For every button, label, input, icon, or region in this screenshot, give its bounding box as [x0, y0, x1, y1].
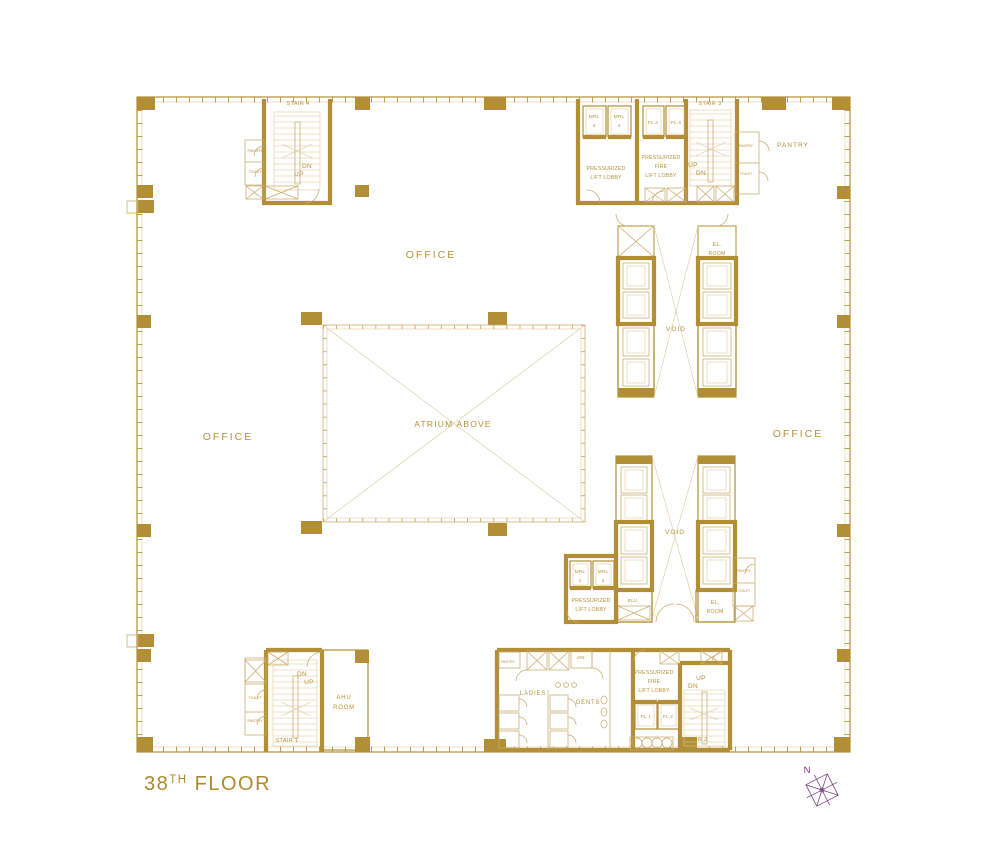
- stair4-toilet-label: TOILET: [248, 170, 262, 174]
- tr-toilet-small-label: TOILET: [740, 172, 753, 176]
- stair3-up: UP: [688, 162, 698, 169]
- core-top-right: MRL 3 MRL 4 PRESSURIZED LIFT LOBBY FL 3 …: [578, 99, 769, 203]
- br-fire-lobby-line2: FIRE: [648, 679, 661, 685]
- title-word: FLOOR: [188, 773, 271, 795]
- lower-core-double-door-right: [676, 604, 694, 622]
- mr-lobby-line2: LIFT LOBBY: [575, 607, 607, 613]
- washroom-stalls: [499, 683, 607, 749]
- title-number: 38: [144, 773, 169, 795]
- stair3-label: STAIR 3: [698, 101, 721, 107]
- atrium-label: ATRIUM ABOVE: [414, 419, 492, 429]
- tr-fire-lobby-line2: FIRE: [655, 164, 668, 170]
- mrl3-line1: MRL: [589, 114, 600, 120]
- title-ordinal: TH: [169, 774, 187, 786]
- mr-toilet-small-label: TOILET: [738, 589, 751, 593]
- fl2-label: FL 2: [663, 714, 673, 720]
- void-upper-label: VOID: [666, 326, 686, 333]
- tr-fire-lobby-line3: LIFT LOBBY: [645, 173, 677, 179]
- ahu-door-arc: [307, 652, 322, 667]
- stair3-dn: DN: [696, 170, 706, 177]
- gents-label: GENTS: [576, 700, 601, 706]
- stair4-pantry-label: PANTRY: [247, 149, 263, 153]
- north-label: N: [804, 765, 811, 776]
- stair1-up: UP: [304, 679, 314, 686]
- office-left-label: OFFICE: [203, 431, 254, 443]
- tr-fire-lobby-line1: PRESSURIZED: [641, 155, 680, 161]
- gents-door-arc: [592, 668, 603, 679]
- core-bottom-right: PRESSURIZED FIRE LIFT LOBBY FL 1 FL 2 UP…: [630, 650, 730, 750]
- north-arrow: N: [801, 765, 844, 811]
- mrl4-line1: MRL: [614, 114, 625, 120]
- pantry-room-label: PANTRY: [777, 142, 809, 149]
- mrl1-line1: MRL: [575, 569, 586, 575]
- ahu-room-line2: ROOM: [333, 705, 355, 711]
- br-basins: [632, 738, 672, 748]
- stair2-label: STAIR 2: [684, 737, 707, 743]
- mr-pantry-small-label: PANTRY: [737, 569, 752, 573]
- tr-pantry-door-arc: [759, 141, 769, 151]
- lower-core-double-door-left: [656, 604, 674, 622]
- stair1-label: STAIR 1: [275, 738, 298, 744]
- upper-core-door-arc-right: [716, 214, 728, 226]
- tr-toilet-door-arc: [759, 172, 768, 181]
- ladies-label: LADIES: [520, 691, 546, 697]
- perimeter-walls: [137, 97, 850, 752]
- mrl2-line2: 2: [602, 578, 605, 584]
- ladies-door-arc: [516, 670, 527, 681]
- fl1-label: FL 1: [641, 714, 651, 720]
- stair1-dn: DN: [297, 671, 307, 678]
- atrium: ATRIUM ABOVE: [323, 325, 585, 522]
- stair4-dn: DN: [302, 163, 312, 170]
- page-title: 38TH FLOOR: [144, 773, 271, 795]
- stair4-up: UP: [294, 171, 304, 178]
- elv-label: ELV.: [628, 598, 638, 604]
- stair2-dn: DN: [688, 683, 698, 690]
- stair2-treads: [684, 694, 725, 742]
- office-top-label: OFFICE: [406, 249, 457, 261]
- tr-pantry-small-label: PANTRY: [739, 144, 754, 148]
- stair2-up: UP: [696, 675, 706, 682]
- el-room-lower-line1: EL.: [711, 600, 719, 606]
- wash-pantry-label: PANTRY: [501, 660, 516, 664]
- tr-lobby-line1: PRESSURIZED: [586, 166, 625, 172]
- floor-plan-canvas: ATRIUM ABOVE OFFICE OFFICE OFFICE STAIR …: [0, 0, 1000, 850]
- ahu-room-line1: AHU: [336, 695, 351, 701]
- stair1-block: DN UP STAIR 1 TOILET PANTRY AHU ROOM: [245, 650, 368, 752]
- elevator-core-lower: VOID ELV. EL. ROOM MRL 1 MRL 2 PRESSURIZ…: [566, 456, 755, 622]
- bl-pantry-label: PANTRY: [247, 719, 263, 723]
- fl4-label: FL 4: [671, 120, 681, 126]
- stair4-block: STAIR 4 DN UP PANTRY TOILET: [245, 99, 330, 203]
- fl3-label: FL 3: [648, 120, 658, 126]
- mr-lobby-line1: PRESSURIZED: [571, 598, 610, 604]
- mrl4-line2: 4: [618, 123, 621, 129]
- mrl3-line2: 3: [593, 123, 596, 129]
- el-room-upper-line1: EL.: [713, 242, 721, 248]
- mrl1-line2: 1: [579, 578, 582, 584]
- br-fire-lobby-line1: PRESSURIZED: [634, 670, 673, 676]
- el-room-lower-line2: ROOM: [707, 609, 724, 615]
- jan-label: JAN.: [576, 655, 585, 660]
- elevator-core-upper: EL. ROOM VOID: [616, 214, 736, 397]
- void-lower-label: VOID: [665, 529, 685, 536]
- br-fire-lobby-line3: LIFT LOBBY: [638, 688, 670, 694]
- tr-lobby-line2: LIFT LOBBY: [590, 175, 622, 181]
- office-right-label: OFFICE: [773, 428, 824, 440]
- washroom-block: PANTRY JAN. LADIES GENTS: [497, 650, 633, 750]
- bl-toilet-label: TOILET: [248, 696, 262, 700]
- upper-core-door-arc-left: [616, 214, 628, 226]
- floor-plan-svg: ATRIUM ABOVE OFFICE OFFICE OFFICE STAIR …: [0, 0, 1000, 850]
- stair4-label: STAIR 4: [286, 101, 309, 107]
- mrl2-line1: MRL: [598, 569, 609, 575]
